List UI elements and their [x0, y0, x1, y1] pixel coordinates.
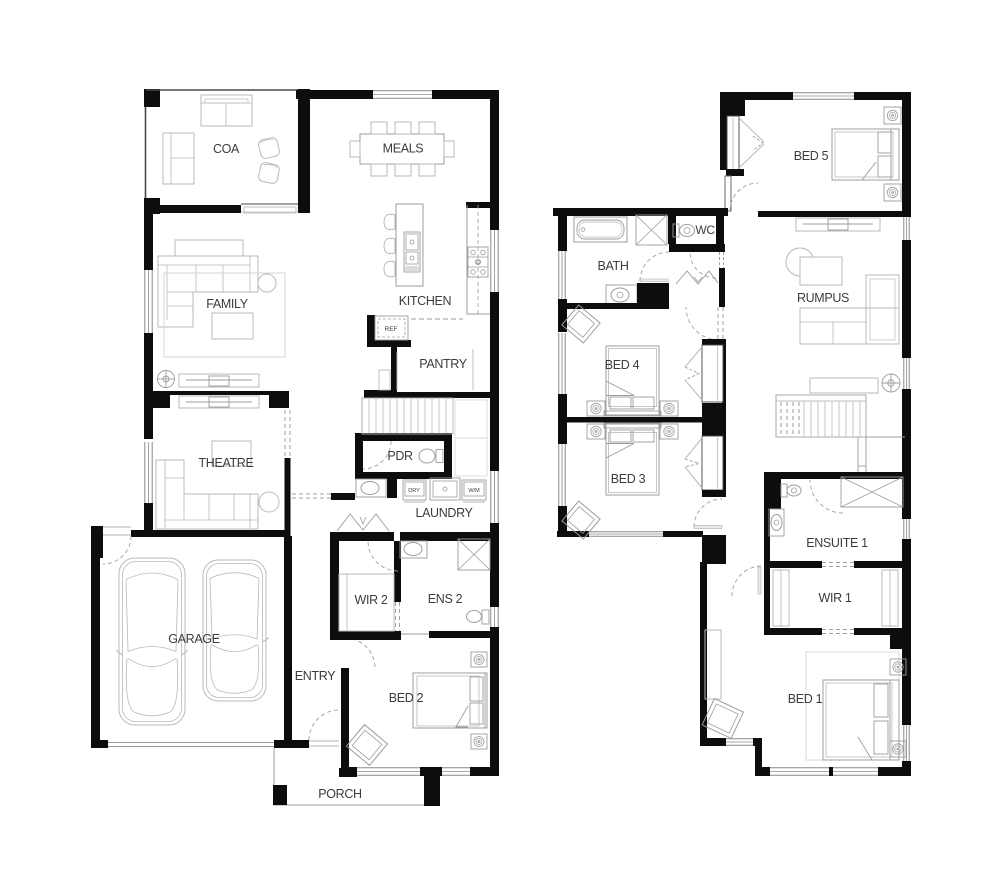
- svg-text:PORCH: PORCH: [318, 787, 362, 801]
- svg-text:ENS 2: ENS 2: [428, 592, 463, 606]
- svg-text:BATH: BATH: [597, 259, 628, 273]
- svg-text:WIR 1: WIR 1: [819, 591, 852, 605]
- svg-text:DRY: DRY: [408, 488, 420, 494]
- svg-text:ENTRY: ENTRY: [295, 669, 336, 683]
- svg-text:PDR: PDR: [387, 449, 413, 463]
- svg-text:THEATRE: THEATRE: [199, 456, 254, 470]
- svg-text:BED 5: BED 5: [794, 149, 829, 163]
- svg-text:BED 1: BED 1: [788, 692, 823, 706]
- svg-text:ENSUITE 1: ENSUITE 1: [806, 536, 868, 550]
- svg-text:W/M: W/M: [468, 488, 480, 494]
- svg-text:COA: COA: [213, 142, 240, 156]
- svg-text:BED 4: BED 4: [605, 358, 640, 372]
- svg-text:RUMPUS: RUMPUS: [797, 291, 849, 305]
- svg-text:KITCHEN: KITCHEN: [399, 294, 452, 308]
- svg-text:BED 2: BED 2: [389, 691, 424, 705]
- svg-text:BED 3: BED 3: [611, 472, 646, 486]
- svg-text:WIR 2: WIR 2: [355, 593, 388, 607]
- svg-text:FAMILY: FAMILY: [206, 297, 248, 311]
- svg-text:WC: WC: [695, 223, 715, 237]
- svg-text:REF: REF: [385, 326, 398, 333]
- svg-text:GARAGE: GARAGE: [168, 632, 219, 646]
- svg-text:LAUNDRY: LAUNDRY: [415, 506, 473, 520]
- svg-text:MEALS: MEALS: [383, 142, 424, 156]
- svg-text:PANTRY: PANTRY: [419, 357, 467, 371]
